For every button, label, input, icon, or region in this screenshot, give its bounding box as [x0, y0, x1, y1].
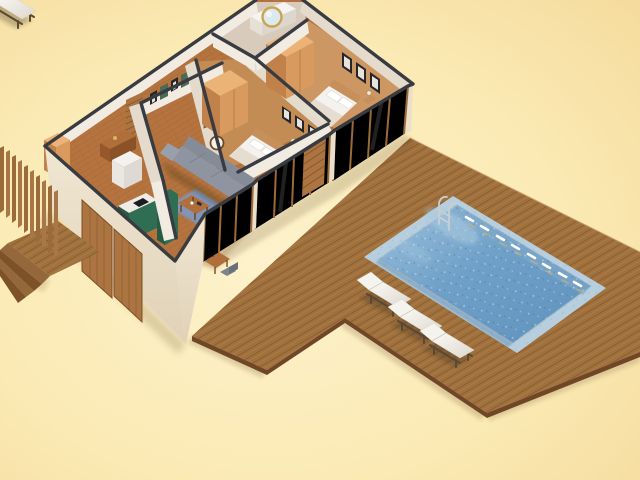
decor-bowl: [113, 136, 117, 140]
table-decor: [190, 201, 193, 204]
round-gold-mirror: [263, 8, 282, 27]
isometric-house-scene: [0, 0, 640, 480]
render-canvas: [0, 0, 640, 480]
